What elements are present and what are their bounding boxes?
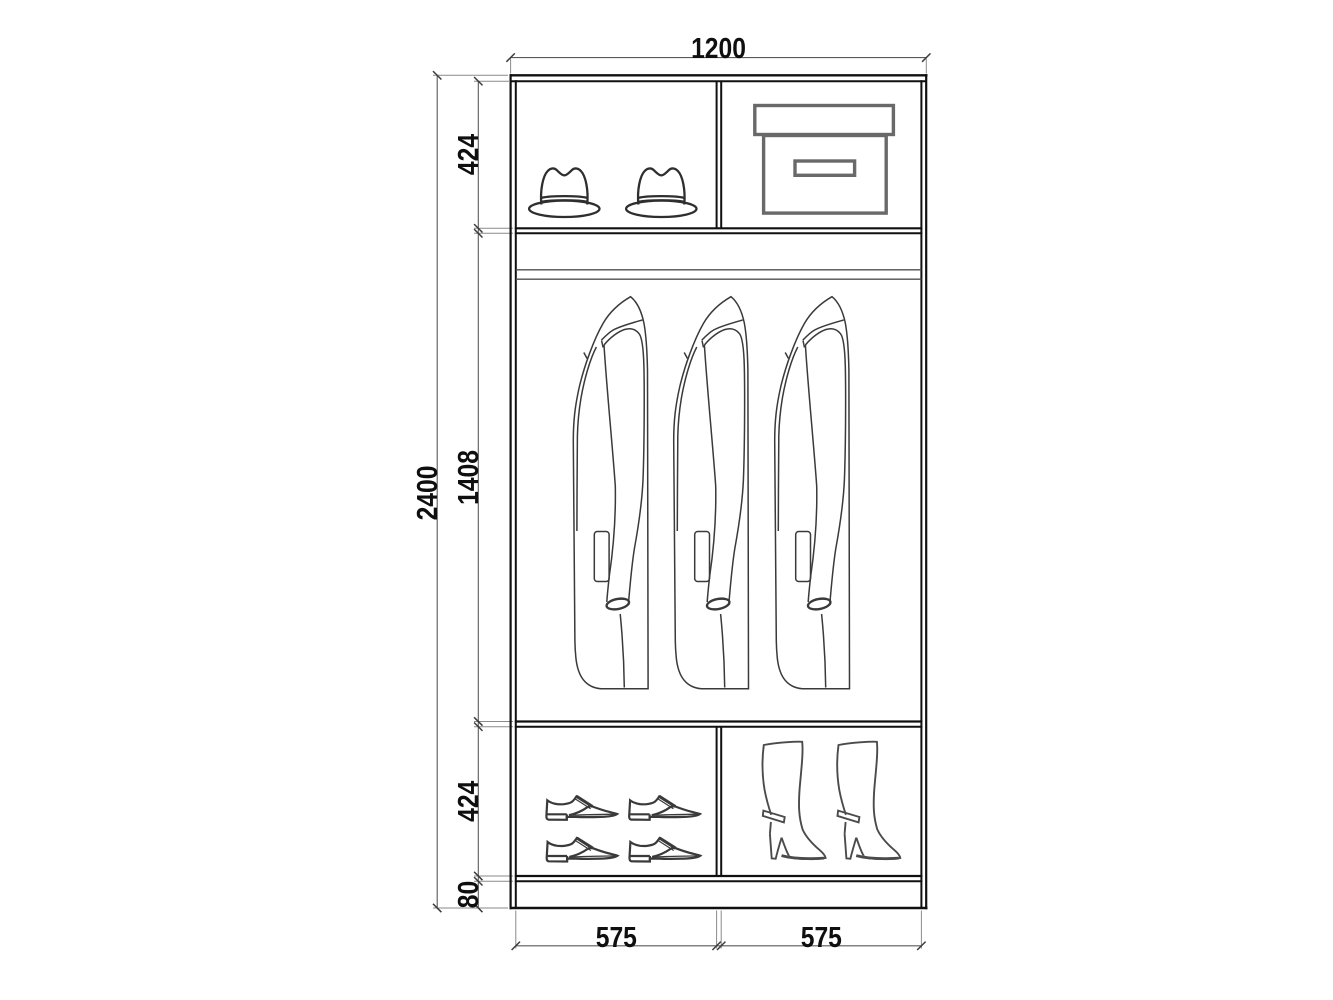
svg-text:80: 80 xyxy=(452,881,484,908)
svg-text:575: 575 xyxy=(801,921,842,953)
svg-text:2400: 2400 xyxy=(411,466,443,521)
svg-text:424: 424 xyxy=(452,781,484,822)
svg-text:424: 424 xyxy=(452,134,484,175)
svg-text:575: 575 xyxy=(596,921,637,953)
svg-text:1200: 1200 xyxy=(691,32,746,64)
svg-text:1408: 1408 xyxy=(452,450,484,505)
